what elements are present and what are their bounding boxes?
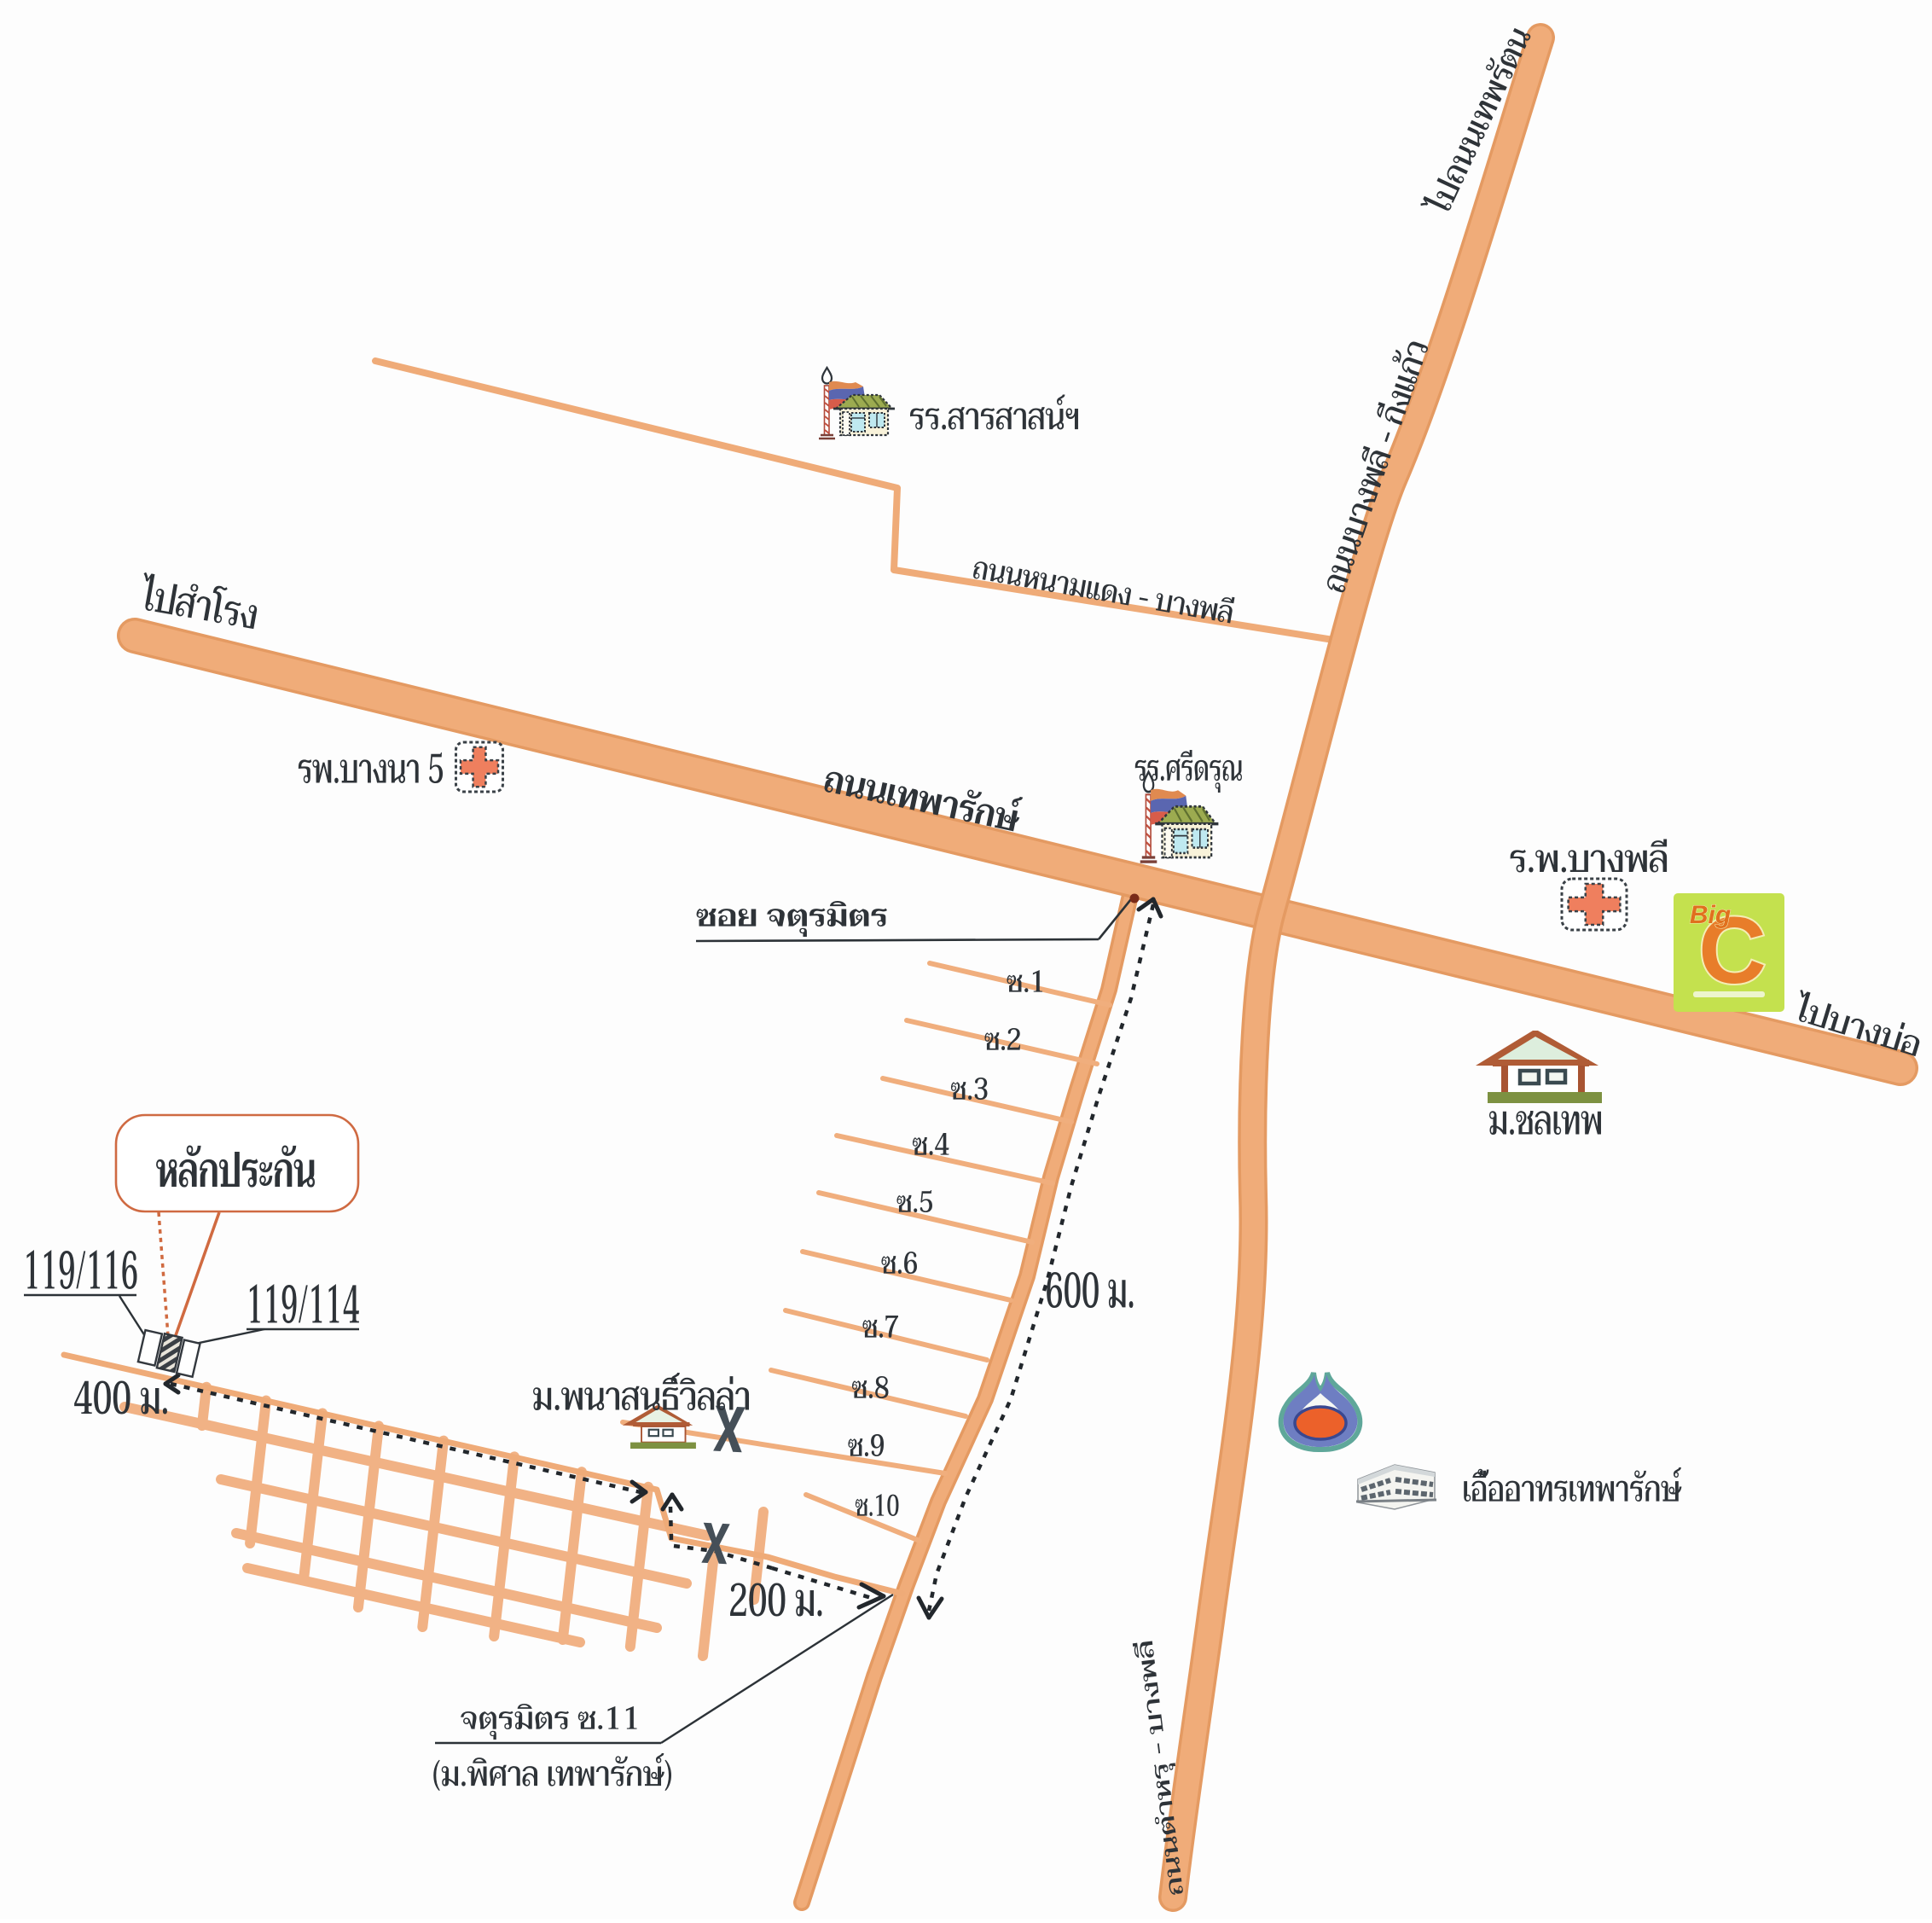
- svg-text:Big: Big: [1690, 901, 1731, 929]
